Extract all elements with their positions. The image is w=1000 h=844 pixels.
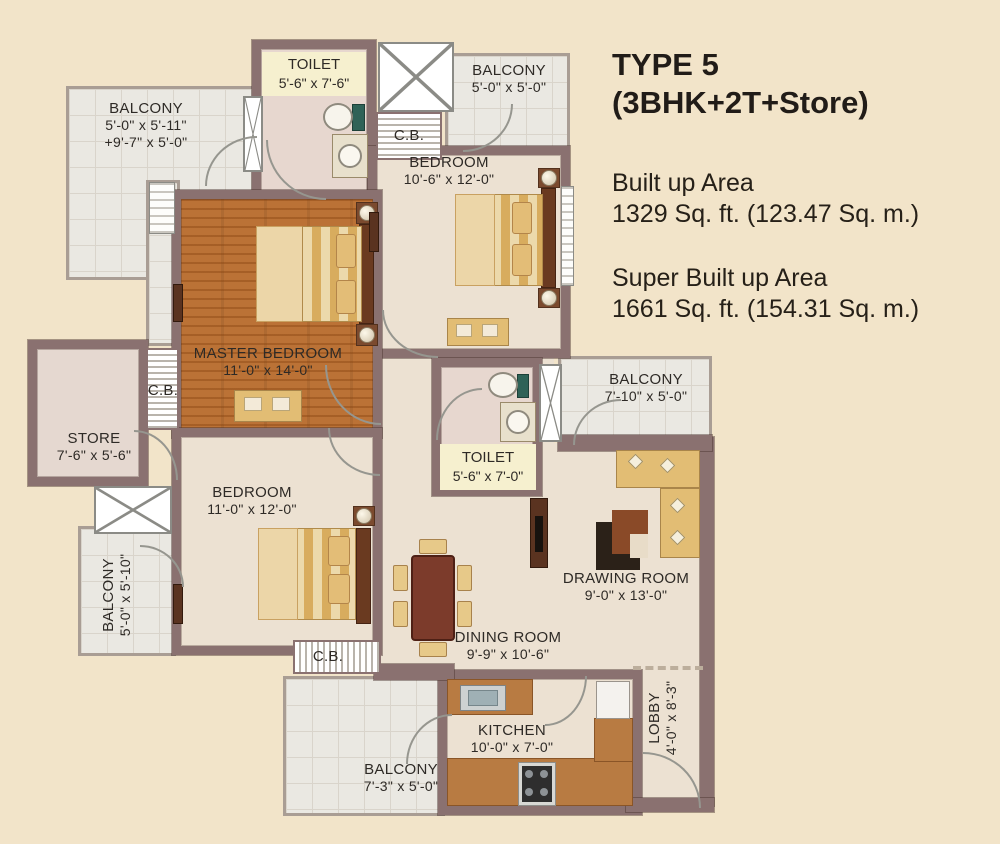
- room-name: LOBBY: [646, 681, 663, 755]
- dining-chair: [419, 539, 447, 554]
- label-toilet-mid: TOILET 5'-6" x 7'-0": [440, 444, 536, 490]
- burner-icon: [525, 770, 533, 778]
- room-dims: 10'-0" x 7'-0": [471, 739, 554, 756]
- room-name: DRAWING ROOM: [563, 570, 689, 587]
- label-dining-room: DINING ROOM 9'-9" x 10'-6": [455, 629, 562, 663]
- window-bedroom-top-icon: [561, 186, 574, 286]
- room-dims: 9'-9" x 10'-6": [455, 646, 562, 663]
- room-name: DINING ROOM: [455, 629, 562, 646]
- room-dims: 5'-0" x 5'-10": [117, 554, 134, 637]
- room-name: C.B.: [394, 127, 424, 144]
- sofa-cushion: [244, 397, 262, 411]
- shaft-bottom-left-icon: [94, 486, 172, 534]
- label-lobby: LOBBY 4'-0" x 8'-3": [646, 681, 680, 755]
- room-dims: 11'-0" x 14'-0": [194, 362, 342, 379]
- label-store: STORE 7'-6" x 5'-6": [57, 430, 131, 464]
- label-master-bedroom: MASTER BEDROOM 11'-0" x 14'-0": [194, 345, 342, 379]
- room-dims: +9'-7" x 5'-0": [105, 134, 188, 151]
- bed-headboard: [356, 528, 371, 624]
- room-name: BALCONY: [472, 62, 546, 79]
- built-up-area-label: Built up Area: [612, 168, 919, 199]
- room-dims: 7'-6" x 5'-6": [57, 447, 131, 464]
- bed-headboard: [541, 188, 556, 288]
- pillow: [512, 244, 532, 276]
- burner-icon: [525, 788, 533, 796]
- label-toilet-top: TOILET 5'-6" x 7'-6": [262, 52, 366, 96]
- washbasin-icon: [506, 410, 530, 434]
- info-panel: TYPE 5 (3BHK+2T+Store) Built up Area 132…: [612, 46, 919, 325]
- room-dims: 5'-6" x 7'-0": [453, 467, 524, 485]
- kitchen-counter: [594, 718, 633, 762]
- super-built-up-area-label: Super Built up Area: [612, 263, 919, 294]
- plan-title-line1: TYPE 5: [612, 46, 919, 84]
- sofa-cushion: [272, 397, 290, 411]
- lamp-icon: [541, 290, 557, 306]
- window-master-left-icon: [149, 182, 175, 234]
- label-balcony-top-left: BALCONY 5'-0" x 5'-11" +9'-7" x 5'-0": [105, 100, 188, 151]
- room-dims: 10'-6" x 12'-0": [404, 171, 495, 188]
- room-dims: 5'-0" x 5'-11": [105, 117, 188, 134]
- label-cb-bottom: C.B.: [313, 648, 343, 665]
- fridge: [596, 681, 630, 719]
- label-cb-top: C.B.: [394, 127, 424, 144]
- wc-icon: [323, 103, 353, 131]
- window-shaft-mid-icon: [539, 364, 562, 442]
- label-balcony-top-right: BALCONY 5'-0" x 5'-0": [472, 62, 546, 96]
- room-name: BALCONY: [364, 761, 438, 778]
- wc-icon: [488, 372, 518, 398]
- room-name: BALCONY: [105, 100, 188, 117]
- room-dims: 7'-10" x 5'-0": [605, 388, 688, 405]
- shaft-top-icon: [378, 42, 454, 112]
- drawing-sofa-right: [660, 488, 700, 558]
- pillow: [336, 234, 356, 268]
- sofa-cushion: [456, 324, 472, 337]
- dining-chair: [393, 565, 408, 591]
- room-name: C.B.: [148, 382, 178, 399]
- tv-unit: [369, 212, 379, 252]
- wall-drawing-right: [700, 437, 714, 806]
- built-up-area-value: 1329 Sq. ft. (123.47 Sq. m.): [612, 199, 919, 230]
- dining-chair: [419, 642, 447, 657]
- label-balcony-right: BALCONY 7'-10" x 5'-0": [605, 371, 688, 405]
- room-dims: 5'-6" x 7'-6": [279, 74, 350, 92]
- dining-chair: [457, 565, 472, 591]
- plan-title-line2: (3BHK+2T+Store): [612, 84, 919, 122]
- room-store: [28, 340, 148, 486]
- label-bedroom-top: BEDROOM 10'-6" x 12'-0": [404, 154, 495, 188]
- drawing-sofa-top: [616, 450, 700, 488]
- lobby-open-boundary: [633, 666, 703, 674]
- tv-unit: [173, 584, 183, 624]
- lamp-icon: [541, 170, 557, 186]
- super-built-up-area-value: 1661 Sq. ft. (154.31 Sq. m.): [612, 294, 919, 325]
- room-dims: 11'-0" x 12'-0": [207, 501, 297, 518]
- dining-chair: [457, 601, 472, 627]
- room-dims: 7'-3" x 5'-0": [364, 778, 438, 795]
- room-dims: 5'-0" x 5'-0": [472, 79, 546, 96]
- washbasin-icon: [338, 144, 362, 168]
- burner-icon: [540, 788, 548, 796]
- wc-tank: [517, 374, 529, 398]
- label-kitchen: KITCHEN 10'-0" x 7'-0": [471, 722, 554, 756]
- sofa-cushion: [482, 324, 498, 337]
- label-balcony-left: BALCONY 5'-0" x 5'-10": [100, 554, 134, 637]
- room-name: TOILET: [462, 449, 514, 467]
- room-name: BEDROOM: [404, 154, 495, 171]
- pillow: [328, 536, 350, 566]
- master-bed: [256, 226, 304, 322]
- burner-icon: [540, 770, 548, 778]
- room-name: KITCHEN: [471, 722, 554, 739]
- wc-tank: [352, 104, 365, 131]
- dining-chair: [393, 601, 408, 627]
- room-name: C.B.: [313, 648, 343, 665]
- label-drawing-room: DRAWING ROOM 9'-0" x 13'-0": [563, 570, 689, 604]
- pillow: [328, 574, 350, 604]
- label-cb-left: C.B.: [148, 382, 178, 399]
- bed-blanket: [455, 194, 495, 286]
- room-name: TOILET: [288, 56, 340, 74]
- tv-unit: [173, 284, 183, 322]
- room-name: MASTER BEDROOM: [194, 345, 342, 362]
- bed-blanket: [258, 528, 298, 620]
- label-balcony-bottom: BALCONY 7'-3" x 5'-0": [364, 761, 438, 795]
- tv-screen: [535, 516, 543, 552]
- rug: [630, 534, 648, 558]
- kitchen-sink-basin: [468, 690, 498, 706]
- label-bedroom-bottom: BEDROOM 11'-0" x 12'-0": [207, 484, 297, 518]
- room-name: STORE: [57, 430, 131, 447]
- lamp-icon: [359, 327, 375, 343]
- room-dims: 4'-0" x 8'-3": [663, 681, 680, 755]
- floor-plan: BALCONY 5'-0" x 5'-11" +9'-7" x 5'-0" TO…: [0, 0, 1000, 844]
- dining-table: [411, 555, 455, 641]
- wall-dining-bottom: [374, 664, 454, 680]
- room-name: BALCONY: [605, 371, 688, 388]
- pillow: [512, 202, 532, 234]
- room-name: BEDROOM: [207, 484, 297, 501]
- lamp-icon: [356, 508, 372, 524]
- pillow: [336, 280, 356, 314]
- room-dims: 9'-0" x 13'-0": [563, 587, 689, 604]
- room-name: BALCONY: [100, 554, 117, 637]
